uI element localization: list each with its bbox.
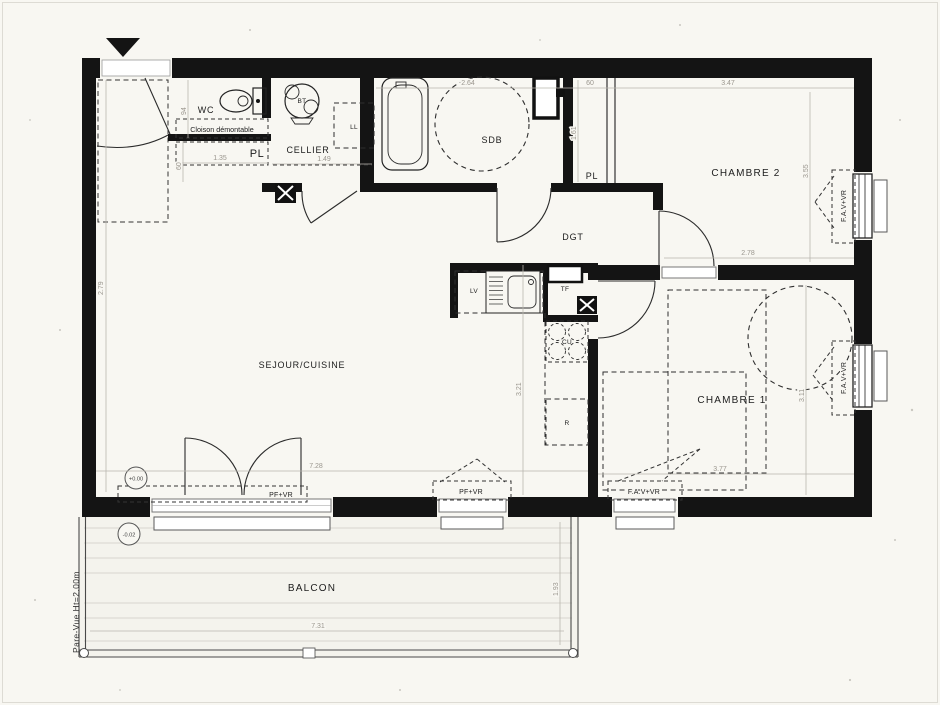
entrance-arrow-icon [106, 38, 140, 57]
chambre2-area: CHAMBRE 2 F.A.V+VR [659, 168, 887, 278]
room-label-pl-entry: PL [250, 148, 264, 160]
level-balcony-value: -0.02 [123, 533, 136, 539]
window-label-kitchen: PF+VR [459, 489, 483, 496]
room-label-dgt: DGT [562, 232, 583, 242]
cellier-door-swing [302, 191, 311, 223]
sdb-turning-circle [435, 77, 529, 171]
dim-chambre1-depth: 3.11 [799, 389, 806, 402]
dim-sejour-depth: 2.79 [98, 281, 105, 295]
equip-label-tf: TF [561, 286, 570, 293]
dim-pl2-depth: 1.61 [571, 126, 578, 140]
chambre2-door-threshold [662, 267, 716, 278]
balcony: BALCON Pare-Vue Ht=2.00m 7.31 1.93 -0.02 [71, 517, 578, 658]
sejour-door-sill [154, 517, 330, 530]
duct-shaft-sdb [534, 78, 565, 118]
room-label-chambre1: CHAMBRE 1 [697, 395, 766, 406]
dim-pl-width: 1.35 [213, 155, 227, 162]
dim-wc-depth: 94 [181, 107, 188, 115]
duct-x-kitchen [577, 296, 597, 314]
window-label-chambre1-bottom: F.A.V+VR [628, 489, 660, 496]
floor-plan-drawing: BALCON Pare-Vue Ht=2.00m 7.31 1.93 -0.02 [0, 0, 940, 705]
equip-label-cu: CU [562, 339, 572, 346]
dim-sejour-width: 7.28 [309, 463, 323, 470]
room-label-chambre2: CHAMBRE 2 [711, 168, 780, 179]
dim-cellier-width: 1.49 [317, 156, 331, 163]
window-label-chambre1-right: F.A.V+VR [841, 362, 848, 394]
dim-balcony-depth: 1.93 [553, 582, 560, 596]
duct-x-cellier [275, 183, 296, 203]
sink-icon [486, 271, 540, 313]
toilet-icon [220, 88, 266, 114]
chambre1-area: CHAMBRE 1 F.A.V+VR F.A.V+VR [598, 281, 887, 529]
bathtub-icon [382, 78, 428, 170]
dim-chambre2-depth: 3.55 [803, 164, 810, 178]
dim-chambre1-width: 3.77 [713, 466, 727, 473]
room-label-wc: WC [198, 105, 215, 115]
dim-chambre2-width: 3.47 [721, 80, 735, 87]
chambre1-window-bottom: F.A.V+VR [608, 481, 682, 529]
level-marker-interior: +0.00 [125, 467, 147, 489]
dim-balcony-width: 7.31 [311, 623, 325, 630]
entrance [97, 38, 170, 222]
level-interior-value: +0.00 [129, 477, 143, 483]
room-label-cellier: CELLIER [286, 145, 329, 155]
dim-pl-depth: 60 [176, 162, 183, 170]
dim-chambre2-inner: 2.78 [741, 250, 755, 257]
dim-kitchen-depth: 3.21 [516, 382, 523, 396]
chambre1-turning-circle [748, 286, 852, 390]
equip-label-bt: BT [298, 98, 307, 105]
railing-corner-right [569, 649, 578, 658]
equip-label-lv: LV [470, 288, 478, 295]
level-marker-balcony: -0.02 [118, 523, 140, 545]
railing-post [303, 648, 315, 658]
chambre1-window-right: F.A.V+VR [813, 341, 887, 415]
cloison-note: Cloison démontable [190, 125, 254, 134]
entry-door-leaf [145, 78, 170, 134]
entry-door-swing [97, 134, 170, 148]
chambre1-window-arrow [618, 449, 700, 481]
floor-plan-page: BALCON Pare-Vue Ht=2.00m 7.31 1.93 -0.02 [0, 0, 940, 705]
window-label-sejour: PF+VR [269, 492, 293, 499]
sdb-area: SDB [382, 77, 551, 242]
dim-pl2-width: 60 [586, 80, 594, 87]
fridge-icon: R [546, 399, 588, 445]
sdb-door-swing [497, 188, 551, 242]
kitchen-area: LV TF CU R [455, 266, 588, 447]
electrical-panel: TF [548, 266, 582, 293]
room-label-sdb: SDB [482, 135, 503, 145]
entry-zone-dashed [98, 80, 168, 222]
window-label-chambre2: F.A.V+VR [841, 190, 848, 222]
chambre2-partition-line [607, 78, 615, 183]
chambre1-furniture-1 [668, 290, 766, 473]
equip-label-ll: LL [350, 124, 358, 131]
cooktop-icon: CU [546, 321, 588, 362]
room-label-sejour: SEJOUR/CUISINE [259, 360, 346, 370]
room-label-balcon: BALCON [288, 583, 336, 594]
dim-sdb-width: 2.64 [461, 80, 475, 87]
wc-area: WC Cloison démontable PL [176, 88, 268, 165]
equip-label-r: R [565, 420, 570, 427]
cellier-door-leaf [311, 191, 357, 223]
room-label-pl-chambre2: PL [586, 171, 599, 181]
kitchen-window: PF+VR [433, 459, 511, 529]
entrance-threshold [102, 60, 170, 76]
chambre2-window: F.A.V+VR [815, 170, 887, 243]
chambre1-door-swing [598, 281, 655, 338]
pare-vue-note: Pare-Vue Ht=2.00m [71, 571, 81, 653]
water-heater-icon: BT [285, 84, 319, 124]
